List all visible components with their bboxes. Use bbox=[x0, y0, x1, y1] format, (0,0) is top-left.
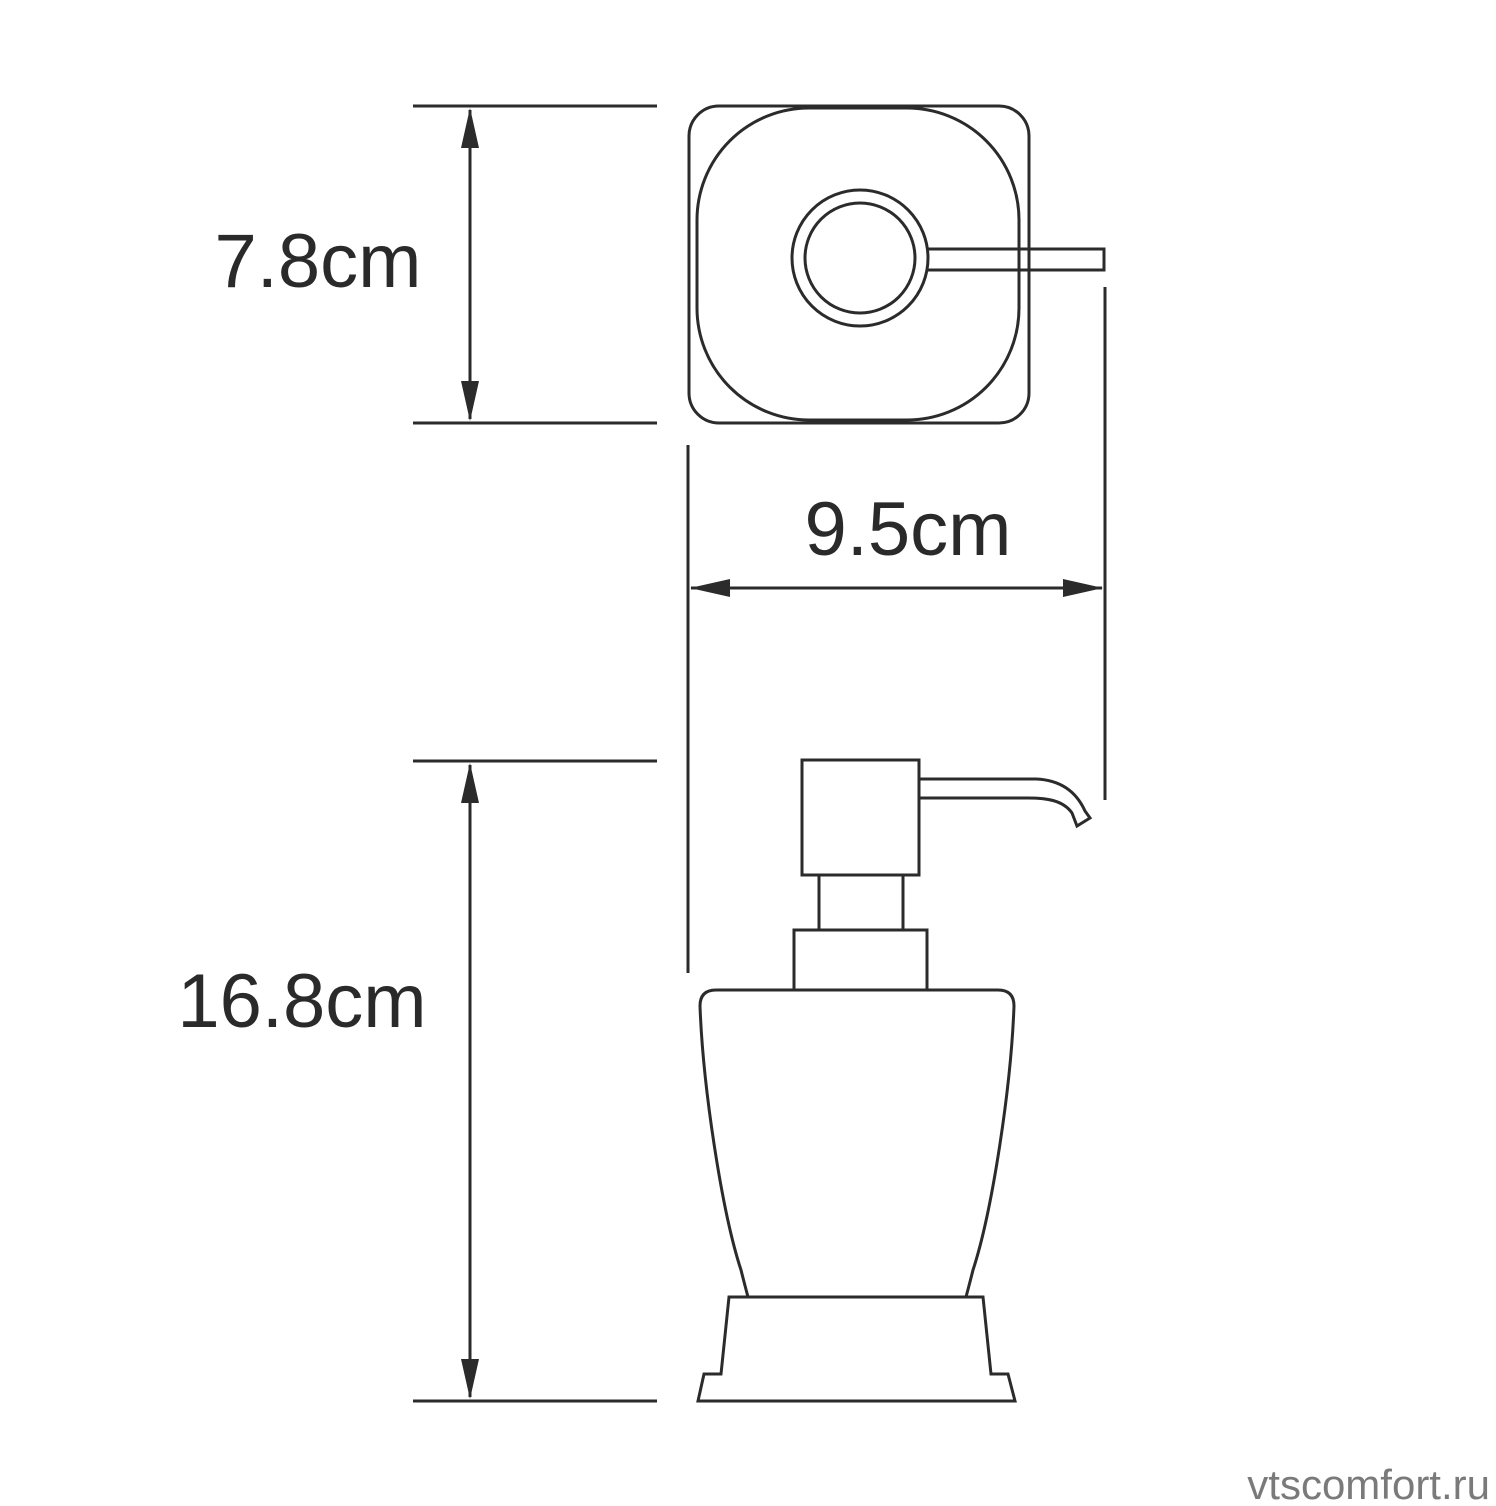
top-view-inner-rim bbox=[697, 108, 1019, 420]
dim-label-top-view-depth: 7.8cm bbox=[215, 219, 422, 304]
dim-label-overall-width: 9.5cm bbox=[805, 487, 1012, 572]
watermark: vtscomfort.ru bbox=[1247, 1461, 1490, 1506]
arrow-left-icon bbox=[690, 579, 730, 597]
front-view-pump-neck bbox=[819, 875, 903, 930]
dim-label-overall-height: 16.8cm bbox=[177, 959, 426, 1044]
top-view bbox=[689, 106, 1104, 423]
arrow-right-icon bbox=[1063, 579, 1103, 597]
front-view bbox=[698, 760, 1090, 1401]
top-view-spout bbox=[927, 249, 1104, 270]
dimension-overall-height: 16.8cm bbox=[177, 761, 657, 1401]
top-view-pump-ring-inner bbox=[805, 203, 915, 313]
arrow-down-icon bbox=[461, 381, 479, 421]
front-view-base bbox=[698, 1297, 1015, 1401]
front-view-collar bbox=[794, 930, 927, 990]
top-view-pump-ring-outer bbox=[792, 190, 928, 326]
top-view-outer-body bbox=[689, 106, 1029, 423]
arrow-down-icon bbox=[461, 1359, 479, 1399]
drawing-canvas: 7.8cm 9.5cm 16.8cm bbox=[0, 0, 1496, 1506]
arrow-up-icon bbox=[461, 108, 479, 148]
technical-drawing: 7.8cm 9.5cm 16.8cm bbox=[0, 0, 1496, 1506]
front-view-body bbox=[700, 990, 1014, 1297]
front-view-spout bbox=[919, 779, 1090, 826]
front-view-pump-head bbox=[802, 760, 919, 875]
arrow-up-icon bbox=[461, 763, 479, 803]
dimension-top-view-depth: 7.8cm bbox=[215, 106, 657, 423]
dimension-overall-width: 9.5cm bbox=[688, 287, 1105, 973]
